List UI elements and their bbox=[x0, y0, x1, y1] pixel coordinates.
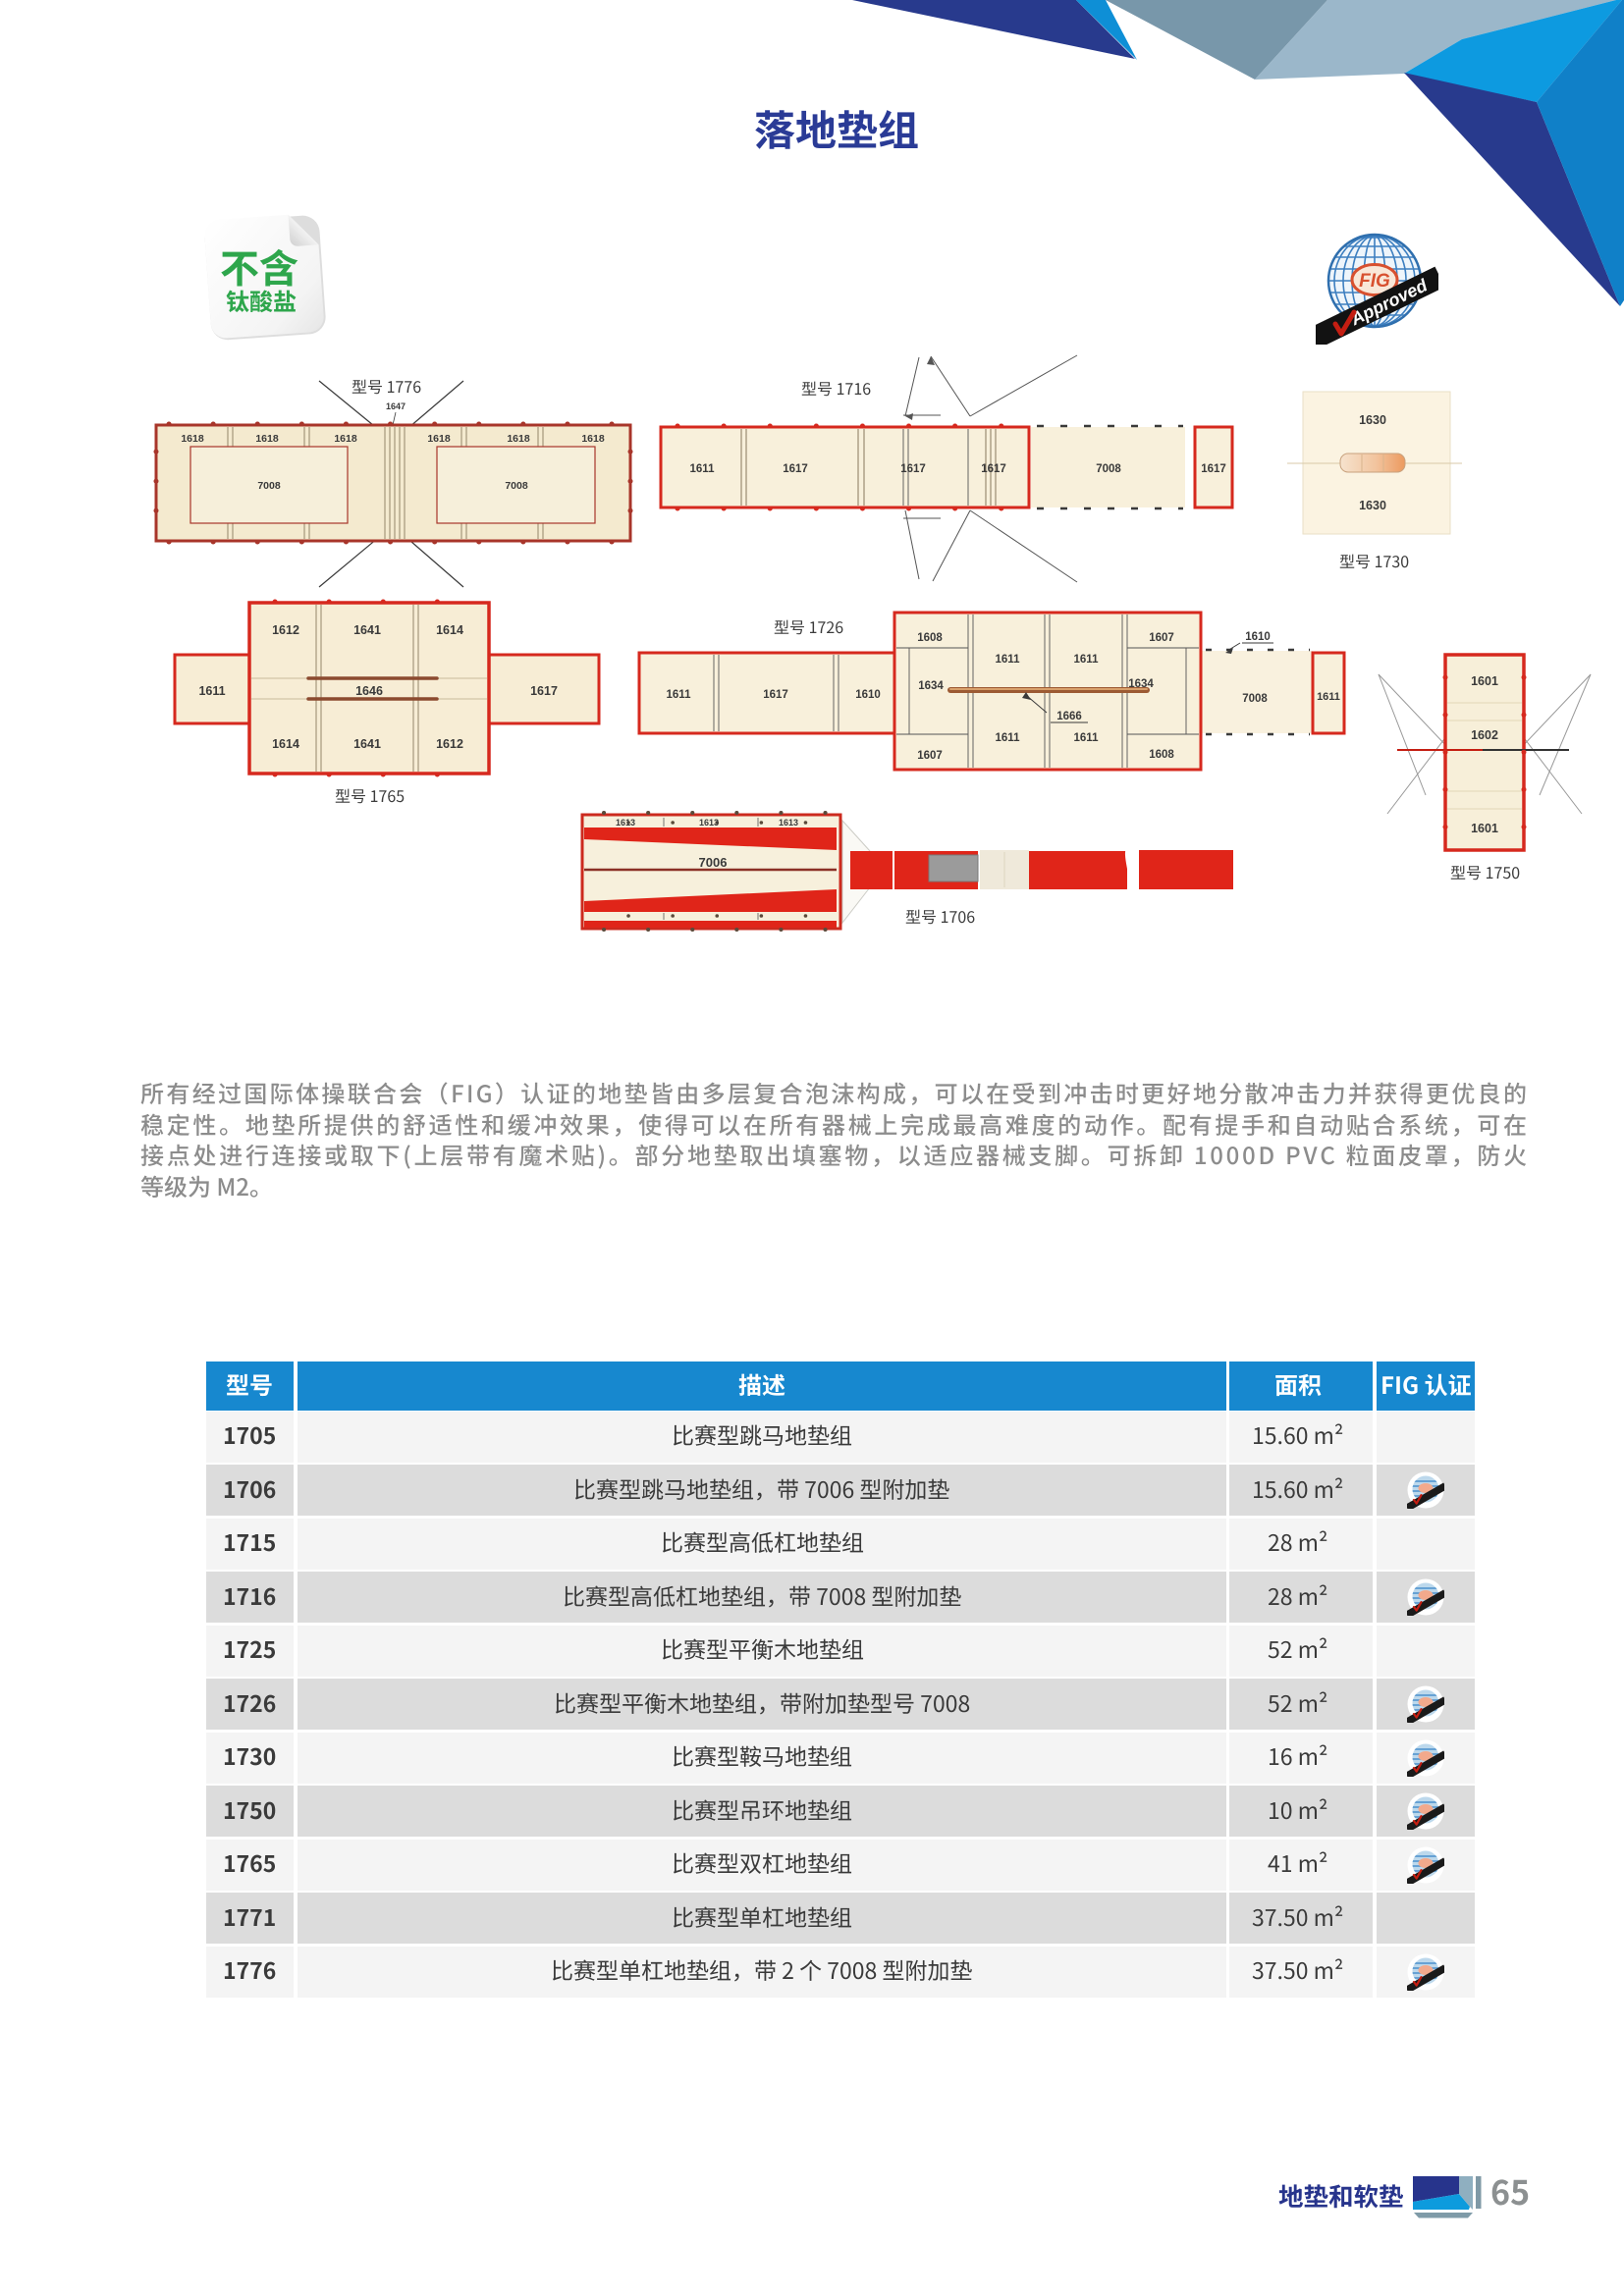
svg-text:1617: 1617 bbox=[763, 689, 788, 701]
svg-text:1634: 1634 bbox=[1128, 678, 1154, 690]
svg-text:1634: 1634 bbox=[918, 680, 944, 692]
svg-text:1617: 1617 bbox=[981, 463, 1006, 475]
svg-text:1611: 1611 bbox=[690, 463, 716, 475]
svg-text:1611: 1611 bbox=[1074, 732, 1100, 744]
svg-text:1607: 1607 bbox=[1149, 632, 1174, 644]
svg-text:1611: 1611 bbox=[1074, 654, 1100, 666]
svg-text:1611: 1611 bbox=[1317, 691, 1340, 703]
svg-text:1614: 1614 bbox=[436, 623, 463, 637]
svg-text:1608: 1608 bbox=[917, 632, 943, 644]
svg-text:1614: 1614 bbox=[272, 737, 299, 751]
svg-text:1617: 1617 bbox=[530, 684, 558, 698]
svg-text:1612: 1612 bbox=[436, 737, 463, 751]
svg-text:1617: 1617 bbox=[900, 463, 926, 475]
svg-text:1617: 1617 bbox=[1201, 463, 1226, 475]
svg-text:1618: 1618 bbox=[334, 433, 357, 445]
svg-text:1611: 1611 bbox=[996, 654, 1021, 666]
svg-text:7008: 7008 bbox=[505, 480, 528, 492]
svg-text:7008: 7008 bbox=[1096, 463, 1121, 475]
svg-text:1612: 1612 bbox=[272, 623, 299, 637]
svg-text:7006: 7006 bbox=[699, 855, 728, 870]
svg-text:1611: 1611 bbox=[996, 732, 1021, 744]
svg-text:1618: 1618 bbox=[427, 433, 451, 445]
svg-text:1630: 1630 bbox=[1359, 413, 1386, 427]
svg-text:1618: 1618 bbox=[181, 433, 204, 445]
svg-text:1630: 1630 bbox=[1359, 499, 1386, 512]
svg-text:1601: 1601 bbox=[1471, 674, 1498, 688]
svg-text:FIG: FIG bbox=[1359, 271, 1390, 292]
svg-text:1641: 1641 bbox=[353, 623, 381, 637]
svg-text:1618: 1618 bbox=[581, 433, 605, 445]
svg-text:1611: 1611 bbox=[198, 684, 225, 698]
svg-text:7008: 7008 bbox=[257, 480, 281, 492]
svg-text:1601: 1601 bbox=[1471, 822, 1498, 835]
svg-text:1608: 1608 bbox=[1149, 749, 1174, 761]
svg-text:1613: 1613 bbox=[616, 818, 635, 828]
svg-text:1613: 1613 bbox=[699, 818, 719, 828]
svg-text:1618: 1618 bbox=[507, 433, 530, 445]
svg-text:1666: 1666 bbox=[1056, 711, 1082, 722]
svg-text:1641: 1641 bbox=[353, 737, 381, 751]
svg-text:1646: 1646 bbox=[355, 684, 383, 698]
svg-text:7008: 7008 bbox=[1242, 693, 1268, 705]
svg-text:1613: 1613 bbox=[779, 818, 798, 828]
svg-text:1611: 1611 bbox=[667, 689, 692, 701]
svg-text:1617: 1617 bbox=[783, 463, 808, 475]
svg-text:1610: 1610 bbox=[855, 689, 881, 701]
svg-text:1607: 1607 bbox=[917, 750, 943, 762]
svg-text:1610: 1610 bbox=[1245, 631, 1271, 643]
svg-text:1602: 1602 bbox=[1471, 728, 1498, 742]
svg-text:1647: 1647 bbox=[386, 401, 406, 411]
svg-text:1618: 1618 bbox=[255, 433, 279, 445]
